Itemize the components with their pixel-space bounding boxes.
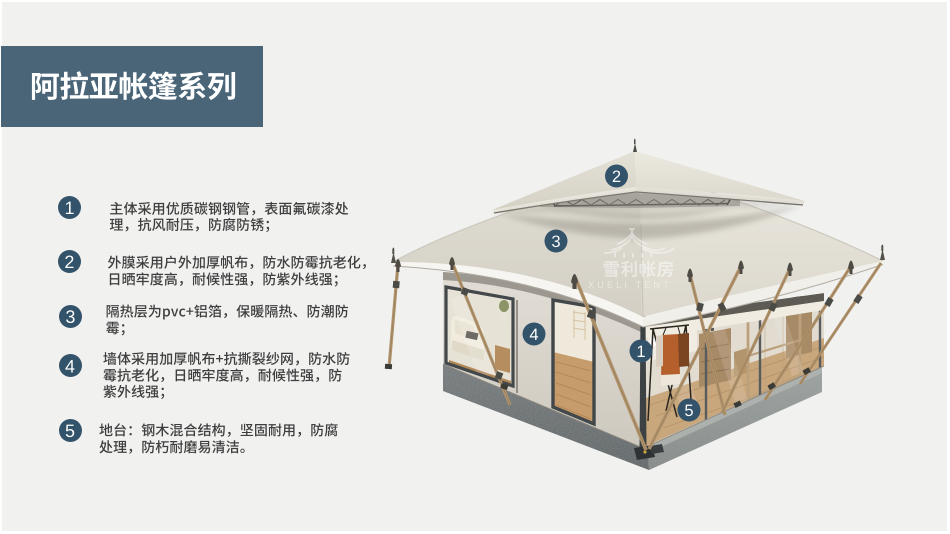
svg-text:XUELI TENT: XUELI TENT — [588, 280, 672, 290]
